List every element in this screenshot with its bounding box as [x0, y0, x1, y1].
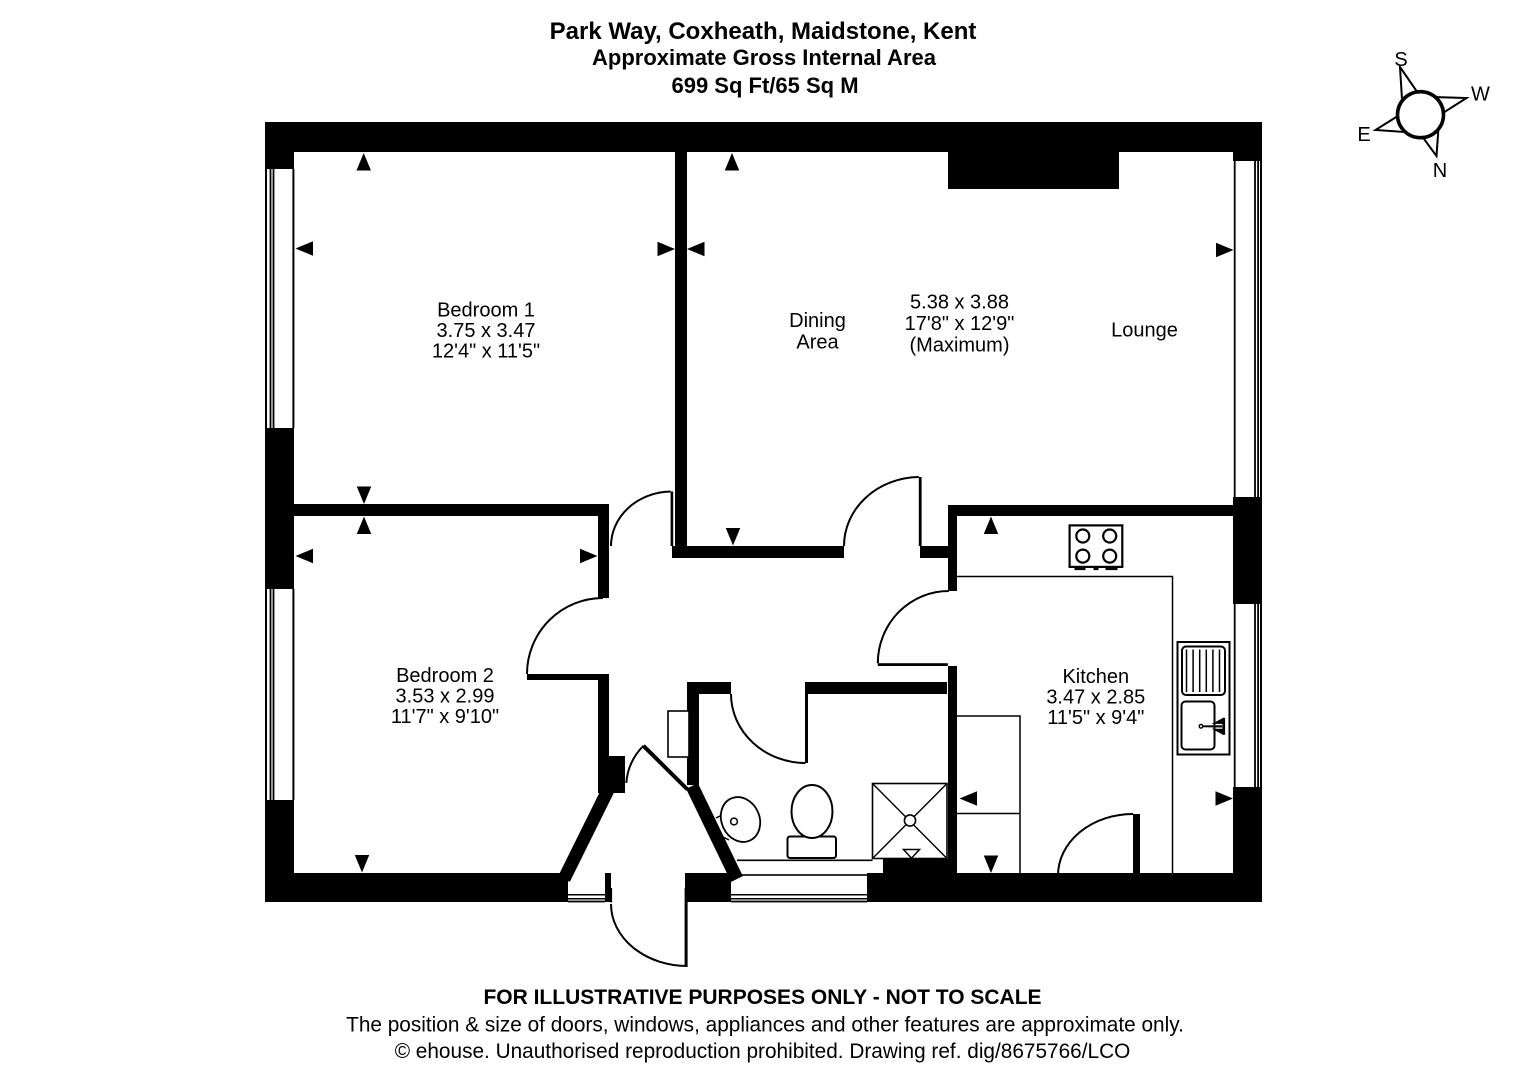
svg-text:E: E — [1357, 124, 1370, 146]
svg-text:12'4" x 11'5": 12'4" x 11'5" — [432, 341, 540, 363]
svg-text:11'7" x 9'10": 11'7" x 9'10" — [391, 706, 499, 728]
svg-text:W: W — [1471, 84, 1490, 106]
svg-text:Bedroom 2: Bedroom 2 — [396, 665, 494, 687]
svg-text:© ehouse. Unauthorised reprodu: © ehouse. Unauthorised reproduction proh… — [395, 1040, 1131, 1063]
svg-text:S: S — [1394, 49, 1407, 71]
svg-text:Bedroom 1: Bedroom 1 — [437, 300, 535, 322]
svg-text:3.75 x 3.47: 3.75 x 3.47 — [437, 320, 536, 342]
svg-text:3.53 x 2.99: 3.53 x 2.99 — [396, 686, 495, 708]
svg-text:Dining: Dining — [789, 310, 846, 332]
svg-text:11'5" x 9'4": 11'5" x 9'4" — [1047, 707, 1144, 729]
svg-text:Lounge: Lounge — [1111, 319, 1178, 341]
svg-text:Approximate Gross Internal Are: Approximate Gross Internal Area — [592, 45, 937, 70]
svg-text:N: N — [1433, 160, 1447, 182]
svg-text:699 Sq Ft/65 Sq M: 699 Sq Ft/65 Sq M — [671, 73, 858, 98]
svg-text:Park Way, Coxheath, Maidstone,: Park Way, Coxheath, Maidstone, Kent — [550, 18, 977, 45]
svg-text:(Maximum): (Maximum) — [910, 335, 1010, 357]
svg-text:FOR ILLUSTRATIVE PURPOSES ONLY: FOR ILLUSTRATIVE PURPOSES ONLY - NOT TO … — [483, 986, 1041, 1009]
svg-text:Kitchen: Kitchen — [1062, 666, 1129, 688]
svg-text:17'8" x 12'9": 17'8" x 12'9" — [905, 313, 1015, 335]
svg-text:3.47 x 2.85: 3.47 x 2.85 — [1046, 687, 1145, 709]
svg-text:The position & size of doors,: The position & size of doors, windows, a… — [346, 1014, 1184, 1037]
svg-text:Area: Area — [796, 332, 839, 354]
svg-text:5.38 x 3.88: 5.38 x 3.88 — [910, 292, 1009, 314]
